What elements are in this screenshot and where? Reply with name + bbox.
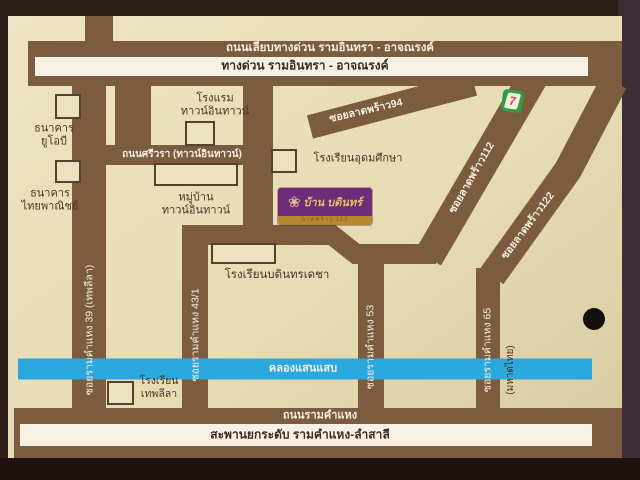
road-label-ramkhamhaeng43-1: ซอยรามคำแหง 43/1	[190, 288, 203, 381]
road-label-ramkhamhaeng65: ซอยรามคำแหง 65	[482, 308, 495, 392]
thepleela-school-box	[108, 382, 133, 404]
scb-bank-box	[56, 161, 80, 182]
map-photo: ถนนเลียบทางด่วน รามอินทรา - อาจณรงค์ ทาง…	[0, 0, 640, 480]
road-label-expressway: ทางด่วน รามอินทรา - อาจณรงค์	[221, 59, 388, 74]
road-label-mahadthai: (มหาดไทย)	[505, 345, 517, 394]
udomsuksa-school-box	[272, 150, 296, 172]
place-label-uob-bank: ธนาคาร ยูโอบี	[34, 123, 74, 150]
hotel-box	[186, 122, 214, 145]
seven-eleven-digit: 7	[508, 95, 518, 108]
seven-eleven-icon: 7	[501, 89, 525, 114]
road-label-ramkhamhaeng53: ซอยรามคำแหง 53	[365, 305, 378, 389]
village-box	[155, 164, 237, 185]
place-label-bodindecha-school: โรงเรียนบดินทรเดชา	[225, 268, 330, 282]
baan-bodin-logo-title: บ้าน บดินทร์	[304, 193, 363, 211]
road-label-flyover: สะพานยกระดับ รามคำแหง-ลำสาลี	[210, 428, 389, 443]
photo-background-bottom	[0, 458, 640, 480]
place-label-thepleela-school: โรงเรียน เทพลีลา	[140, 375, 179, 401]
road-label-expressway-frontage: ถนนเลียบทางด่วน รามอินทรา - อาจณรงค์	[226, 41, 434, 55]
place-label-hotel: โรงแรม ทาวน์อินทาวน์	[181, 93, 249, 120]
bodindecha-school-box	[212, 244, 275, 263]
uob-bank-box	[56, 95, 80, 118]
place-label-scb-bank: ธนาคาร ไทยพาณิชย์	[22, 188, 79, 215]
baan-bodin-logo: ❀ บ้าน บดินทร์ ลาดพร้าว 112	[278, 188, 372, 225]
punch-hole	[583, 308, 605, 330]
place-label-udomsuksa-school: โรงเรียนอุดมศึกษา	[314, 152, 403, 165]
canal-label: คลองแสนแสบ	[269, 362, 337, 375]
lotus-icon: ❀	[288, 195, 301, 210]
place-label-village: หมู่บ้าน ทาวน์อินทาวน์	[162, 192, 230, 219]
road-label-ramkhamhaeng39: ซอยรามคำแหง 39 (เทพลีลา)	[84, 265, 97, 395]
baan-bodin-logo-top: ❀ บ้าน บดินทร์	[278, 188, 372, 216]
road-label-ramkhamhaeng: ถนนรามคำแหง	[283, 409, 357, 422]
seven-eleven-icon-inner: 7	[504, 92, 521, 109]
baan-bodin-logo-subtitle: ลาดพร้าว 112	[278, 216, 372, 225]
road-label-srivara: ถนนศรีวรา (ทาวน์อินทาวน์)	[122, 149, 242, 161]
